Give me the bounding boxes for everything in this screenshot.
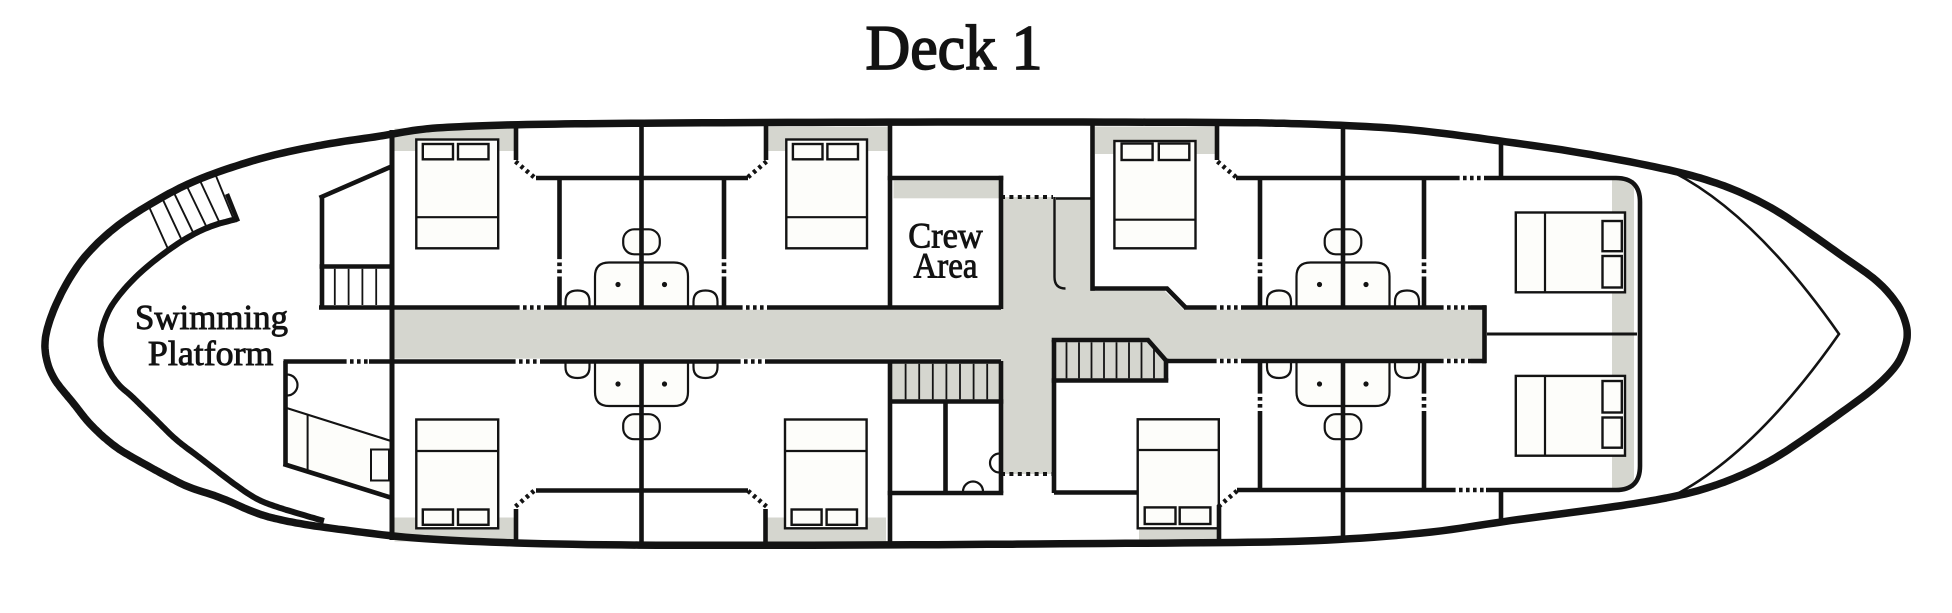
svg-text:Deck 1: Deck 1 bbox=[866, 12, 1043, 83]
svg-text:Platform: Platform bbox=[148, 334, 274, 373]
svg-text:Swimming: Swimming bbox=[135, 298, 288, 337]
svg-text:Area: Area bbox=[914, 246, 978, 286]
